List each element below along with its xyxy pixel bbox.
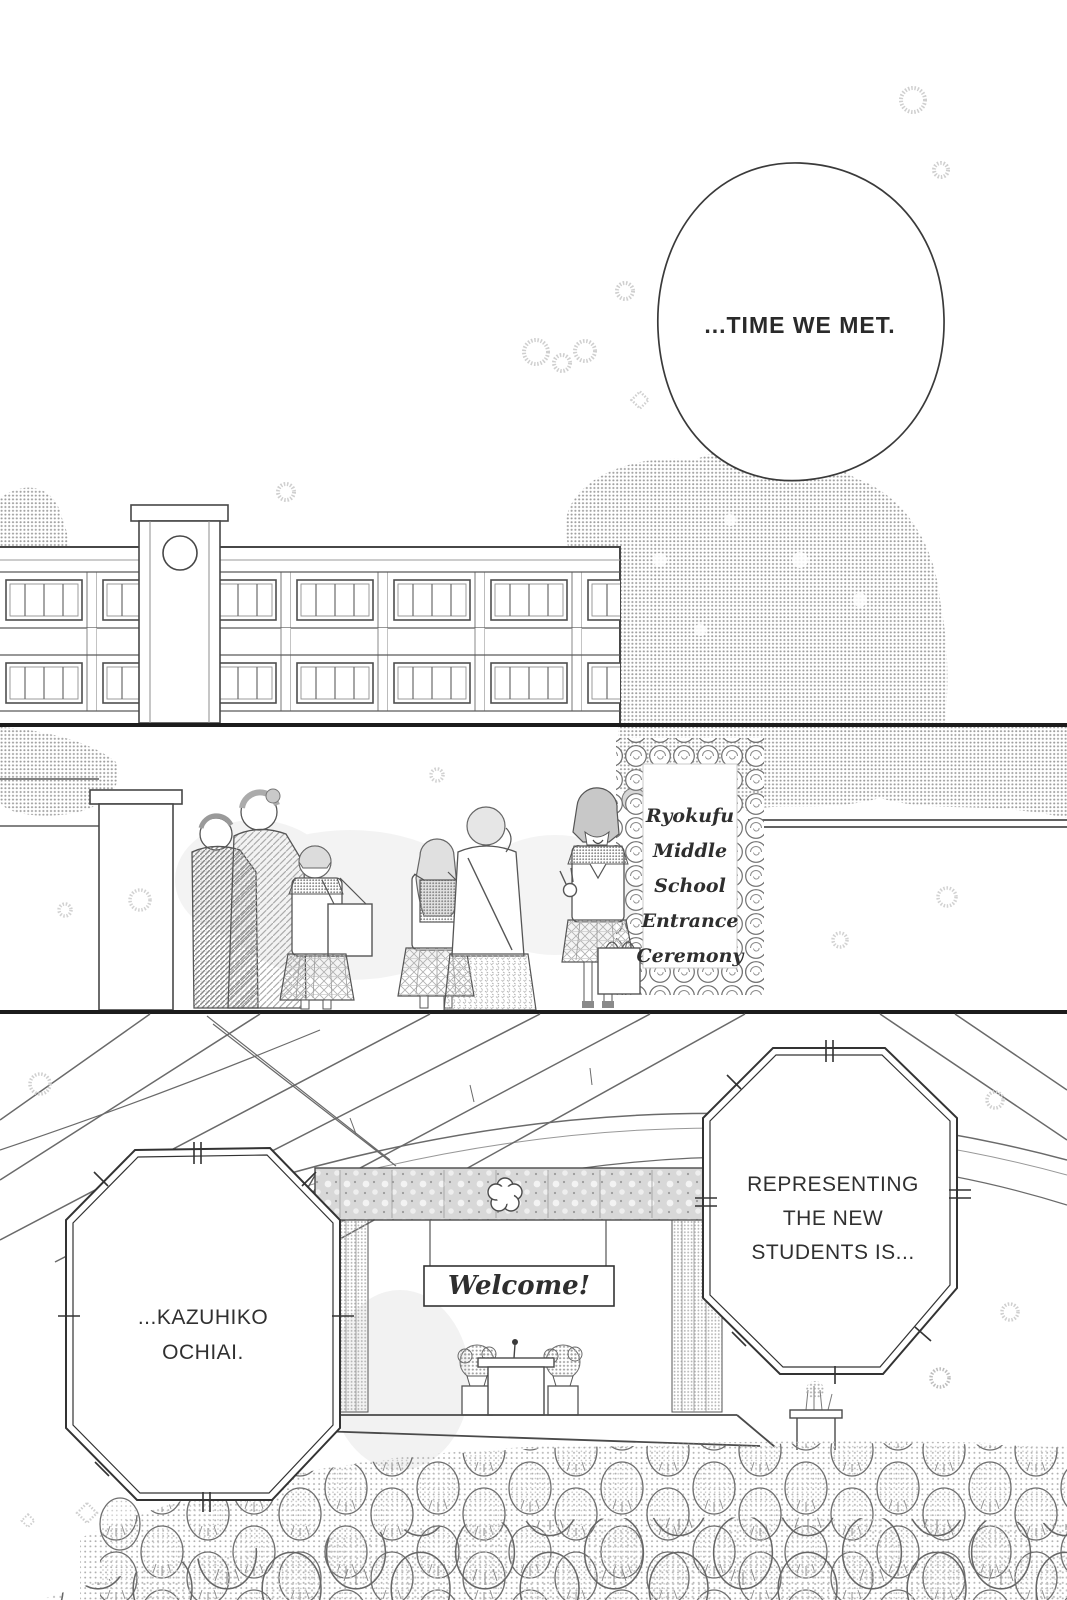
manga-page: ...TIME WE MET. Ryokufu Middle School En… [0,0,1067,1600]
gate-pillar [90,790,182,1010]
tree-large [566,448,948,723]
stage-plant-right [544,1345,582,1415]
panel-border-1 [0,723,1067,727]
dialogue-representing-line-2: THE NEW [718,1202,948,1236]
clock-face [163,536,197,570]
school-building [0,505,620,723]
sign-line-5: Ceremony [616,939,764,974]
sign-line-2: Middle [616,834,764,869]
panel-border-2 [0,1010,1067,1014]
dialogue-time-we-met: ...TIME WE MET. [680,312,920,339]
welcome-banner-text: Welcome! [424,1266,614,1306]
sign-line-3: School [616,869,764,904]
sign-line-4: Entrance [616,904,764,939]
audience-head-single [100,1498,140,1550]
clock-tower [131,505,228,723]
dialogue-representing-line-3: STUDENTS IS... [718,1236,948,1270]
dialogue-representing-line-1: REPRESENTING [718,1168,948,1202]
dialogue-representing: REPRESENTING THE NEW STUDENTS IS... [718,1168,948,1270]
dialogue-kazuhiko-line-1: ...KAZUHIKO [90,1300,316,1335]
dialogue-kazuhiko: ...KAZUHIKO OCHIAI. [90,1300,316,1370]
wall-right [748,820,1067,827]
dialogue-kazuhiko-line-2: OCHIAI. [90,1335,316,1370]
floor-lectern [790,1381,842,1450]
entrance-sign-text: Ryokufu Middle School Entrance Ceremony [616,799,764,974]
panel-entrance-ceremony-gate [0,727,1067,1014]
sign-line-1: Ryokufu [616,799,764,834]
panel-establishing-school [0,88,1067,727]
